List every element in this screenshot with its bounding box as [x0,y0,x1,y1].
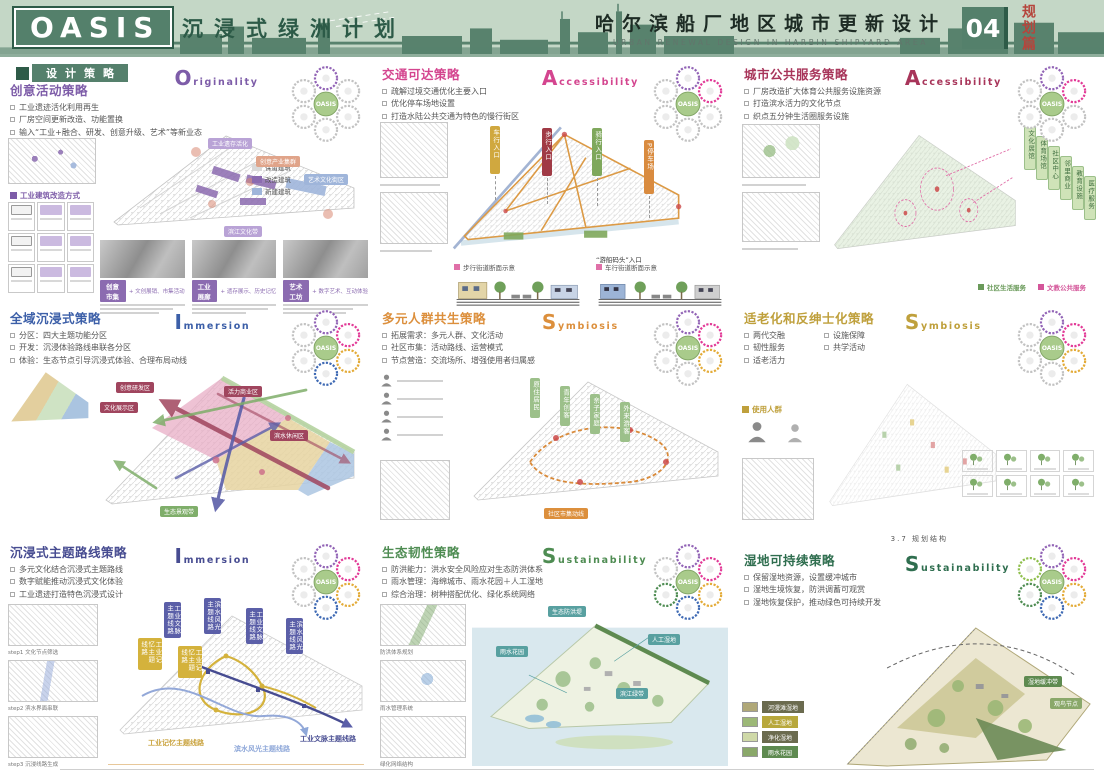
route-step-thumbnail [8,716,98,758]
keyword-title: Accessibility [542,66,639,90]
svg-text:OASIS: OASIS [1042,345,1062,352]
panel-immersion-routes: 沉浸式主题路线策略 多元文化结合沉浸式主题路线 数字赋能推动沉浸式文化体验 工业… [8,542,370,774]
oasis-flower-diagram: OASIS [1006,58,1098,150]
eco-thumbnail [380,660,466,702]
keyword-title: Symbiosis [542,310,619,334]
strategy-bullet: 厂房空间更新改造、功能置换 [10,114,234,126]
presentation-board: OASIS 沉浸式绿洲计划 哈尔滨船厂地区城市更新设计 URBAN RENEWA… [0,0,1104,779]
plant-sketch [1030,475,1061,497]
zone-tag: 生态景观带 [160,506,198,517]
route-legend-label: 滨水风光主题线路 [234,744,290,754]
route-step-thumbnail [8,660,98,702]
case-tag: 工业展廊 [192,280,218,302]
public-service-map [824,122,1020,262]
svg-text:OASIS: OASIS [316,579,336,586]
keyword-title: Sustainability [905,552,1010,576]
zone-tag: 滨水休闲区 [270,430,308,441]
tree-icon [1001,452,1021,466]
strategy-bullet: 节点营造：交流场所、增强使用者归属感 [382,355,606,367]
traffic-thumbnail [380,122,448,178]
strategy-bullet: 开发：沉浸体验路线串联各分区 [10,342,234,354]
transform-sketch [8,233,35,262]
tree-icon [1069,452,1089,466]
project-title-cn: 沉浸式绿洲计划 [182,13,406,43]
route-node-banner: 工业记忆主题线路 [138,638,162,670]
keyword-title: Symbiosis [905,310,982,334]
case-tag: 创意市集 [100,280,126,302]
route-node-banner: 工业文脉主题线路 [246,608,263,644]
strategy-bullet: 输入“工业+融合、研发、创意升级、艺术”等新业态 [10,127,234,139]
people-bar: 亲子家庭 [590,394,600,434]
building-transform-grid [8,202,94,293]
tree-icon [1069,477,1089,491]
transform-sketch [67,233,94,262]
plant-sketch [1030,450,1061,472]
strategy-bullet: 工业遗迹活化利用再生 [10,102,234,114]
eco-thumbnail [380,604,466,646]
entrance-banner: 车行入口 [490,126,500,174]
wetland-tag: 湿地缓冲带 [1024,676,1062,687]
route-legend-label: 工业记忆主题线路 [148,738,204,748]
sub-section-label: 使用人群 [742,404,782,415]
plant-sketch [962,450,993,472]
case-card: 工业展廊+ 遗存展示、历史记忆 [192,240,277,316]
legend-item: 雨水花园 [742,746,804,758]
transform-sketch [67,264,94,293]
site-overview-thumbnail [8,138,96,184]
tree-icon [1035,477,1055,491]
strategy-bullet: 湿地恢复保护，推动绿色可持续开发 [744,597,968,609]
panel-wetland-sustainability: 3.7 规划结构 湿地可持续策略 保留湿地资源，设置缓冲城市 湿地生境恢复，防洪… [742,542,1096,774]
chip-square-icon [16,67,29,80]
oasis-flower-diagram: OASIS [642,536,734,628]
eco-tag: 生态防洪堤 [548,606,586,617]
strategy-bullet: 综合治理：树种搭配优化、绿化系统网络 [382,589,606,601]
strategy-bullet: 织点五分钟生活圈服务设施 [744,111,968,123]
strategy-bullet: 湿地生境恢复，防洪调蓄可观赏 [744,584,968,596]
aging-thumbnail [742,458,814,520]
oasis-flower-diagram: OASIS [1006,302,1098,394]
wetland-tag: 观鸟节点 [1050,698,1082,709]
design-strategy-label: 设计策略 [32,64,128,82]
transform-sketch [37,233,64,262]
strategy-bullet: 共学活动 [824,342,904,354]
person-icon [380,392,393,405]
panel-eco-resilience: 生态韧性策略 防洪能力：洪水安全风险应对生态防洪体系 雨水管理：海绵城市、雨水花… [380,542,732,774]
oasis-flower-diagram: OASIS [1006,536,1098,628]
legend-item: 人工湿地 [742,716,804,728]
user-group-icons [746,420,806,444]
tree-icon [967,452,987,466]
plant-sketch [996,475,1027,497]
oasis-logo: OASIS [12,6,174,49]
map-tag: 滨江文化带 [224,226,262,237]
oasis-flower-diagram: OASIS [642,58,734,150]
strategy-bullet: 打造滨水活力的文化节点 [744,98,968,110]
zone-tag: 活力商业区 [224,386,262,397]
strategy-bullet: 适老活力 [744,355,824,367]
case-note: + 文创展销、市集活动 [129,287,185,295]
oasis-flower-diagram: OASIS [280,302,372,394]
strategy-bullet: 打造水陆公共交通为特色的慢行街区 [382,111,606,123]
case-photo [192,240,277,278]
strategy-bullet: 优化停车场地设置 [382,98,606,110]
plant-sketch [962,475,993,497]
route-node-banner: 工业文脉主题线路 [164,602,181,638]
person-icon [380,410,393,423]
transform-sketch [67,202,94,231]
route-step-thumbnail [8,604,98,646]
planting-palette-grid [962,450,1094,497]
case-photo [100,240,185,278]
svg-text:OASIS: OASIS [1042,101,1062,108]
route-node-banner: 滨水风光主题线路 [204,598,221,634]
panel-originality: 创意活动策略 工业遗迹活化利用再生 厂房空间更新改造、功能置换 输入“工业+融合… [8,64,370,304]
strategy-bullet: 雨水管理：海绵城市、雨水花园＋人工湿地 [382,576,606,588]
legend-item: 新建建筑 [252,186,291,196]
strategy-bullet: 两代交融 [744,330,824,342]
strategy-bullet: 工业遗迹打造特色沉浸式设计 [10,589,234,601]
legend-item: 净化湿地 [742,731,804,743]
step-caption: step3 沉浸线路生成 [8,760,58,768]
page-number-badge: 04 [962,7,1008,49]
keyword-title: Immersion [175,310,251,334]
strategy-bullet: 体验：生态节点引导沉浸式体验、合理布局动线 [10,355,234,367]
case-tag: 艺术工坊 [283,280,309,302]
step-caption: step1 文化节点筛选 [8,648,58,656]
tree-icon [967,477,987,491]
entrance-banner: 步行入口 [542,128,552,176]
panel-public-service: 城市公共服务策略 厂房改造扩大体育公共服务设施资源 打造滨水活力的文化节点 织点… [742,64,1096,304]
transform-sketch [8,202,35,231]
eco-tag: 滨江绿带 [616,688,648,699]
transform-sketch [37,264,64,293]
keyword-title: Accessibility [905,66,1002,90]
map-tag: 创意产业集群 [256,156,300,167]
keyword-title: Sustainability [542,544,647,568]
person-icon [380,428,393,441]
child-icon [784,420,806,444]
svg-text:OASIS: OASIS [678,579,698,586]
legend-item: 河漫滩湿地 [742,701,804,713]
strategy-bullet: 韧性服务 [744,342,824,354]
plan-structure-note: 3.7 规划结构 [891,534,948,544]
service-bar: 医疗服务 [1084,176,1096,220]
panel-accessibility-traffic: 交通可达策略 疏解过境交通优化主要入口 优化停车场地设置 打造水陆公共交通为特色… [380,64,732,304]
plant-sketch [1063,450,1094,472]
panel-symbiosis-people: 多元人群共生策略 拓展需求：多元人群、文化活动 社区市集：活动路线、运营模式 节… [380,308,732,536]
panel-immersion-zoning: 全域沉浸式策略 分区：四大主题功能分区 开发：沉浸体验路线串联各分区 体验：生态… [8,308,370,536]
eco-tag: 人工湿地 [648,634,680,645]
zone-tag: 文化展示区 [100,402,138,413]
svg-text:OASIS: OASIS [678,101,698,108]
tree-icon [1035,452,1055,466]
service-bar: 教育设施 [1072,166,1084,210]
plant-sketch [996,450,1027,472]
service-thumbnail [742,124,820,178]
keyword-title: Originality [175,66,259,90]
entrance-banner: 骑行入口 [592,128,602,176]
step-caption: step2 滨水界面串联 [8,704,58,712]
eco-thumbnail [380,716,466,758]
panel-aging-anti-gentrification: 适老化和反绅士化策略 两代交融 设施保障 韧性服务 共学活动 适老活力 Symb… [742,308,1096,536]
zone-tag: 创意研发区 [116,382,154,393]
street-section-drawing [454,273,582,307]
people-bar: 青年创客 [560,386,570,426]
board-title-en: URBAN RENEWAL DESIGN IN HARBIN SHIPYARD … [595,38,946,47]
case-photo [283,240,368,278]
person-icon [380,374,393,387]
oasis-flower-diagram: OASIS [280,536,372,628]
wetland-legend: 河漫滩湿地 人工湿地 净化湿地 雨水花园 [742,698,804,761]
oasis-flower-diagram: OASIS [642,302,734,394]
design-strategy-chip: 设计策略 [16,64,128,82]
strategy-bullet: 数字赋能推动沉浸式文化体验 [10,576,234,588]
header-band: OASIS 沉浸式绿洲计划 哈尔滨船厂地区城市更新设计 URBAN RENEWA… [0,0,1104,57]
svg-text:OASIS: OASIS [1042,579,1062,586]
board-title-cn: 哈尔滨船厂地区城市更新设计 [595,9,946,36]
service-bar: 社区中心 [1048,146,1060,190]
map-tag: 工业遗存活化 [208,138,252,149]
keyword-title: Immersion [175,544,251,568]
people-icon-list [380,374,443,441]
svg-text:OASIS: OASIS [316,101,336,108]
people-bar: 原住居民 [530,378,540,418]
people-bar: 外来游客 [620,402,630,442]
svg-text:OASIS: OASIS [678,345,698,352]
sub-section-label: 工业建筑改造方式 [10,190,80,201]
case-note: + 数字艺术、互动体验 [312,287,368,295]
aging-map [820,370,1000,520]
plant-sketch [1063,475,1094,497]
market-thumbnail [380,460,450,520]
elder-icon [746,420,768,444]
market-route-tag: 社区市集动线 [544,508,588,519]
service-thumbnail [742,192,820,242]
section-tag-vertical: 规划篇 [1018,4,1038,56]
legend-item: 改造建筑 [252,174,291,184]
thumb-caption: 防洪体系规划 [380,648,413,656]
zoning-thumbnail [8,370,90,426]
thumb-caption: 雨水管理系统 [380,704,413,712]
tree-icon [1001,477,1021,491]
map-tag: 艺术文化街区 [304,174,348,185]
case-card: 创意市集+ 文创展销、市集活动 [100,240,185,316]
traffic-thumbnail [380,192,448,244]
thumb-caption: 绿化网络结构 [380,760,413,768]
strategy-bullet: 设施保障 [824,330,904,342]
case-note: + 遗存展示、历史记忆 [220,287,276,295]
street-section-walk: 步行街道断面示意 [454,262,582,311]
transform-sketch [37,202,64,231]
transform-sketch [8,264,35,293]
board-title: 哈尔滨船厂地区城市更新设计 URBAN RENEWAL DESIGN IN HA… [595,9,946,47]
bottom-label: 文教公共服务 [1038,282,1086,292]
bottom-label: 社区生活服务 [978,282,1026,292]
route-legend-label: 工业文脉主题线路 [300,734,356,744]
service-bar: 邻里商业 [1060,156,1072,200]
svg-text:OASIS: OASIS [316,345,336,352]
strategy-bullet: 社区市集：活动路线、运营模式 [382,342,606,354]
route-node-banner: 工业记忆主题线路 [178,646,202,678]
oasis-flower-diagram: OASIS [280,58,372,150]
eco-tag: 雨水花园 [496,646,528,657]
